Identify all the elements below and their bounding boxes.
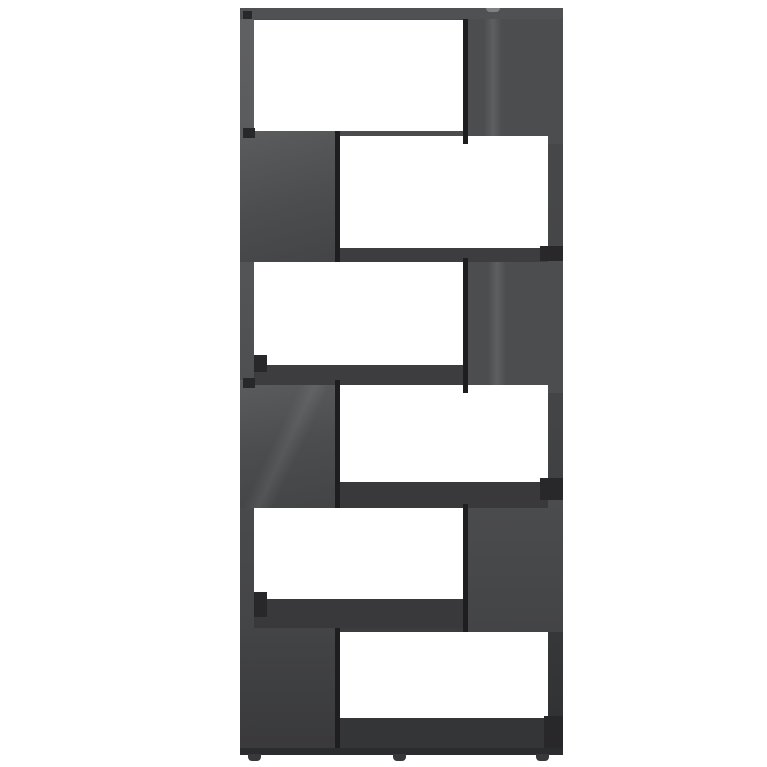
tier3-right-panel (468, 248, 563, 393)
compartment-opening-1 (254, 20, 463, 131)
divider-edge-4 (335, 380, 340, 508)
tier4-left-panel (240, 380, 335, 508)
compartment-opening-3 (254, 262, 463, 365)
gloss-highlight (240, 380, 335, 508)
foot-center (393, 754, 406, 761)
foot-left (248, 754, 261, 761)
compartment-opening-6 (340, 632, 548, 718)
joint-notch-left-tier5 (254, 592, 267, 617)
divider-edge-3 (463, 258, 468, 393)
joint-notch-tier2 (243, 128, 255, 138)
compartment-opening-2 (340, 136, 548, 248)
divider-edge-5 (463, 504, 468, 632)
joint-notch-right-tier2 (540, 246, 563, 261)
gloss-highlight (484, 19, 502, 144)
tier2-left-panel (240, 131, 335, 262)
shelf-under-tier2 (340, 248, 548, 262)
joint-notch-tier4 (243, 378, 255, 388)
gloss-highlight (488, 248, 506, 393)
product-photo-canvas (0, 0, 767, 767)
bookcase (240, 8, 563, 757)
shelf-under-tier3 (254, 365, 463, 385)
joint-notch-right-tier4 (540, 478, 563, 500)
joint-notch-top-left (243, 11, 252, 19)
compartment-opening-4 (340, 385, 548, 482)
top-board (240, 8, 563, 19)
tier1-right-panel (468, 19, 563, 144)
foot-right (536, 754, 549, 761)
shelf-under-tier5 (254, 599, 463, 628)
divider-edge-2 (335, 131, 340, 262)
shelf-under-tier4 (340, 482, 548, 508)
divider-edge-1 (463, 13, 468, 144)
divider-edge-6 (335, 628, 340, 754)
top-gloss-spot (486, 8, 500, 12)
compartment-opening-5 (254, 508, 463, 599)
joint-notch-left-tier3 (254, 355, 267, 372)
tier6-left-panel (240, 628, 335, 754)
